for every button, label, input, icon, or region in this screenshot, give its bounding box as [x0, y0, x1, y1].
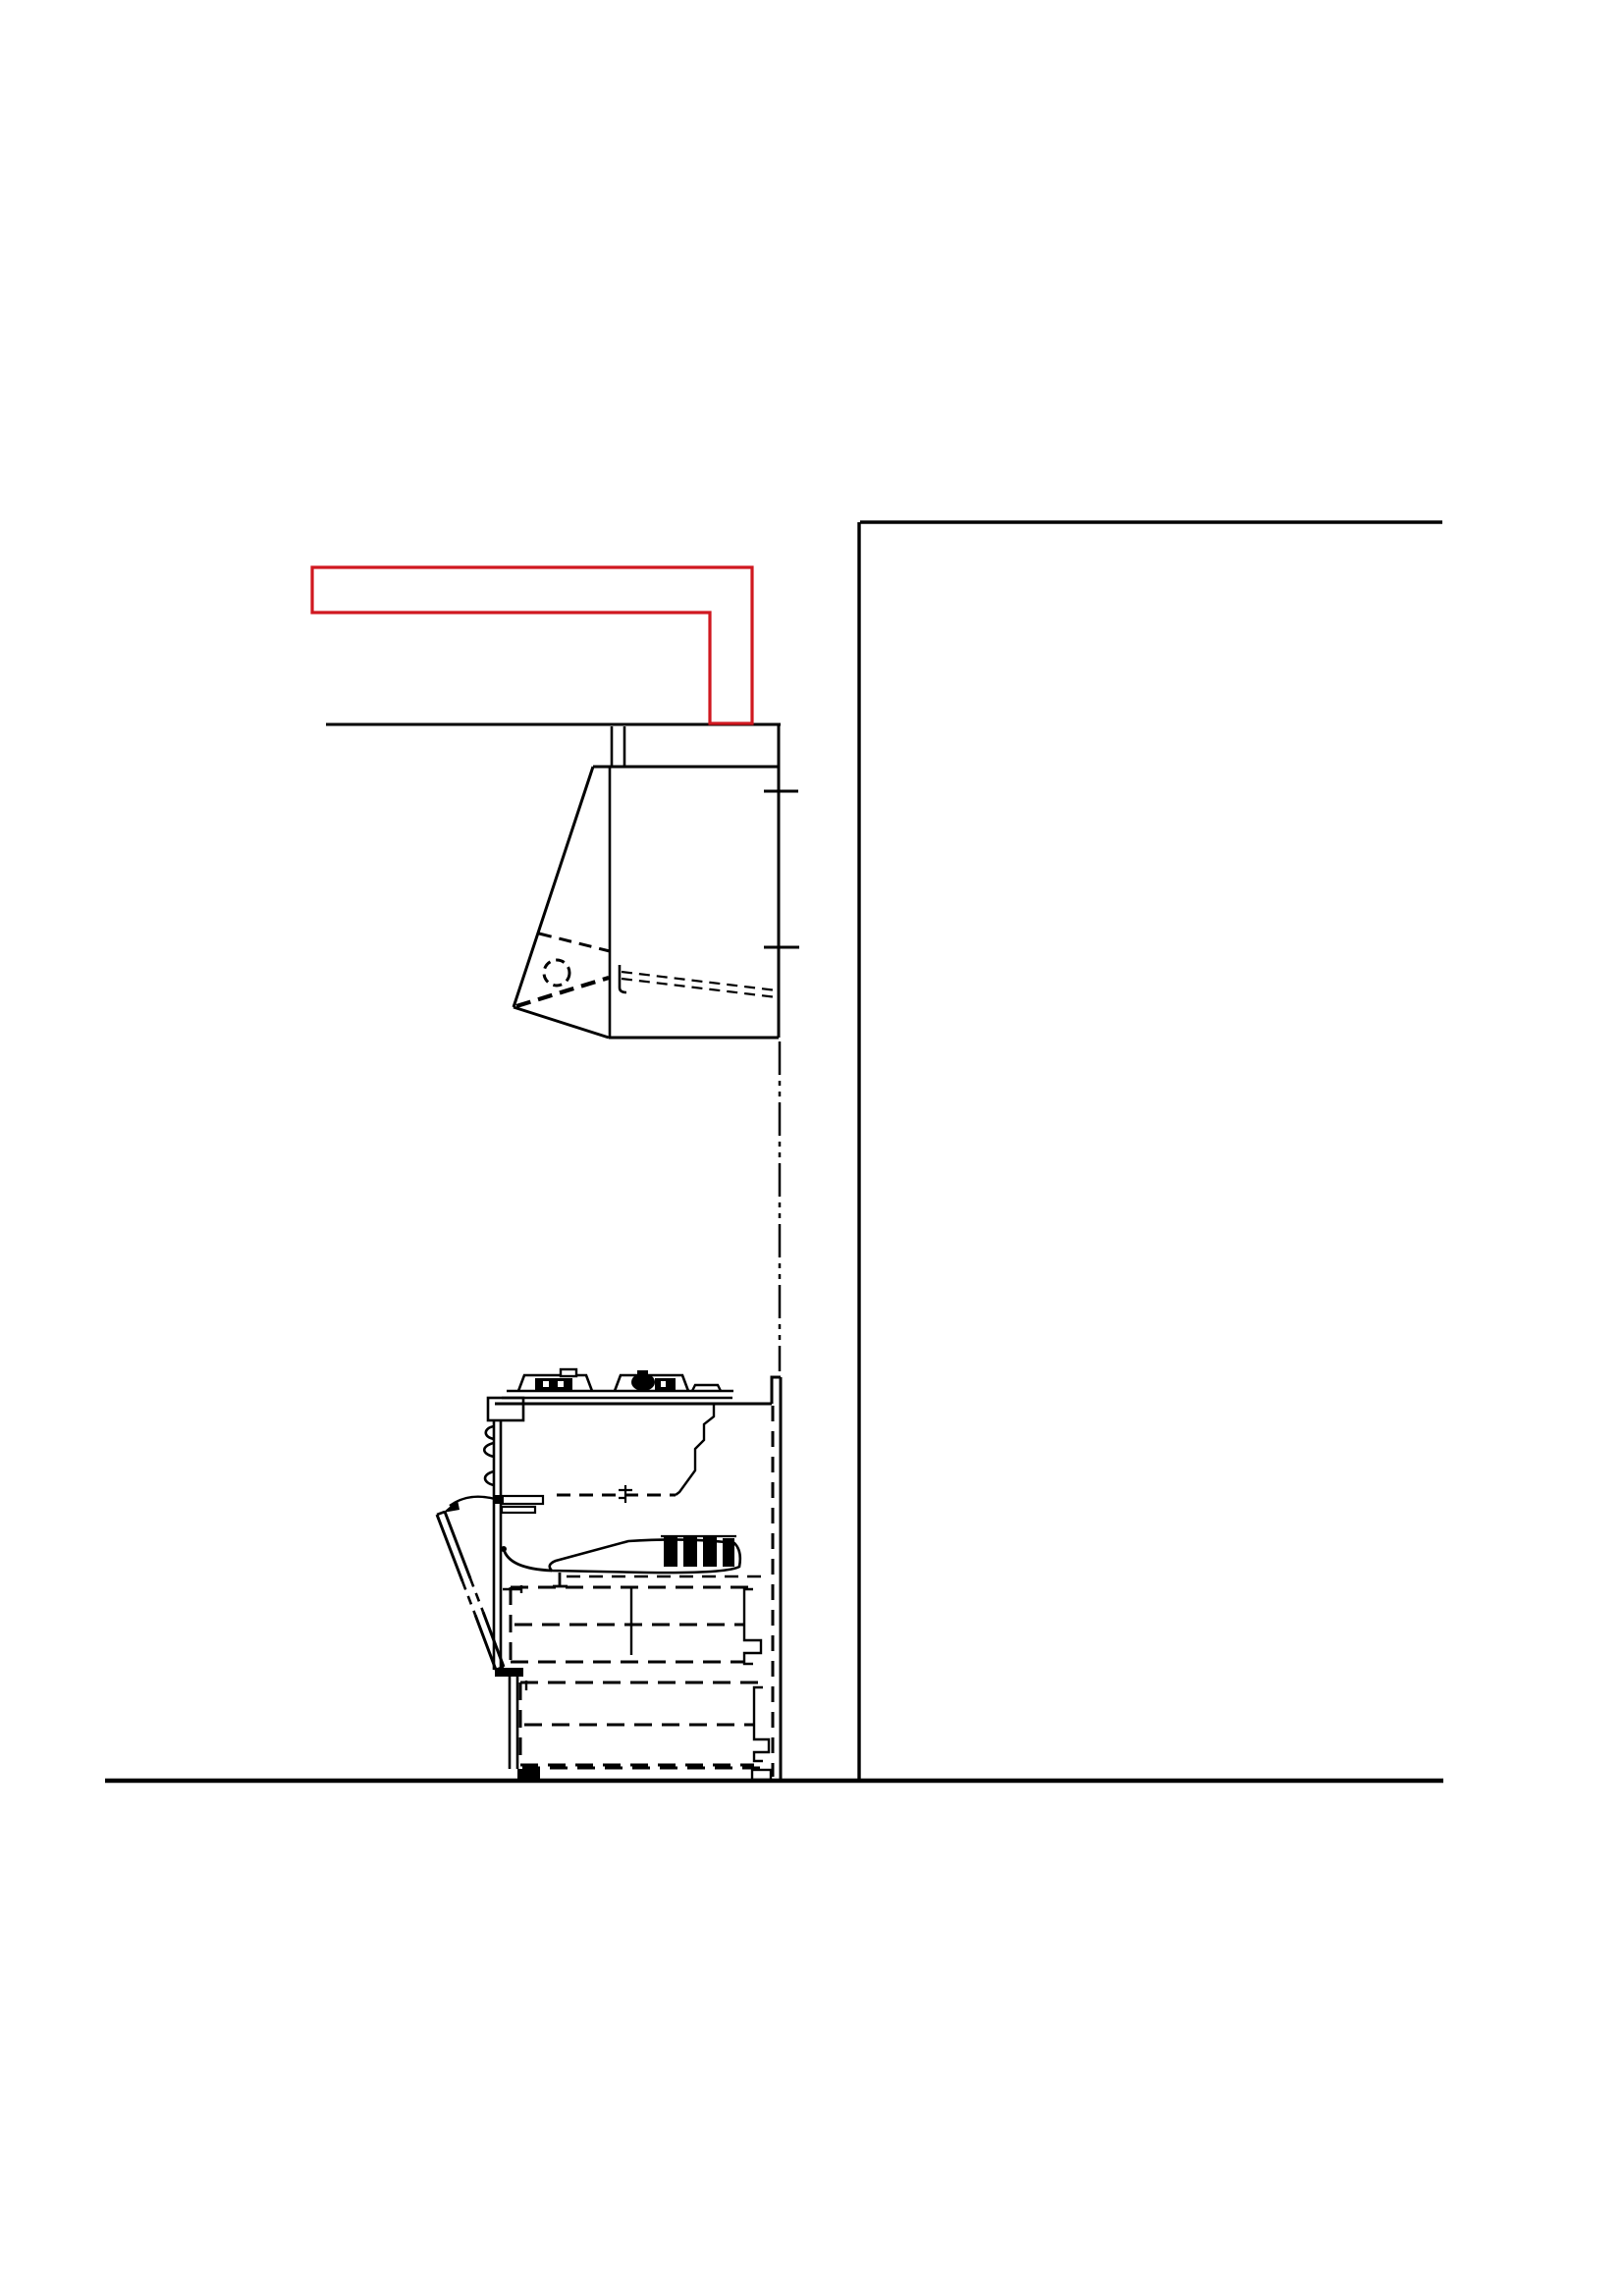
hood-lamp-circle — [544, 960, 569, 986]
hood-front-slant — [514, 767, 593, 1007]
pan-support-pin — [553, 1573, 568, 1586]
burner-right-slit — [661, 1381, 666, 1387]
cad-kitchen-elevation-drawing — [0, 0, 1624, 2296]
door-bottom-block — [495, 1668, 523, 1677]
grill-burner-bar — [723, 1538, 734, 1567]
base-cabinet — [501, 1406, 773, 1780]
grill-curve-joint — [501, 1546, 507, 1552]
control-knob — [485, 1471, 494, 1485]
burner-left-body — [535, 1378, 572, 1390]
control-knob — [484, 1443, 494, 1457]
grill-burner-bar — [683, 1536, 697, 1567]
counter-front-edge — [488, 1398, 523, 1420]
grill-burner-bar — [664, 1536, 677, 1567]
duct-shape — [312, 567, 752, 723]
grill-burner-bar — [703, 1536, 717, 1567]
hinge-bracket — [502, 1496, 543, 1504]
hood-bottom-slant — [514, 1007, 609, 1038]
hinge-bracket — [502, 1507, 535, 1513]
door-inner-dashed — [470, 1578, 483, 1612]
grill-chamber-curve — [504, 1549, 552, 1571]
hood-hidden-edge-upper — [539, 934, 610, 951]
burner-box-step-line — [676, 1404, 714, 1495]
drawer-lower-slide — [754, 1687, 769, 1761]
burner-right-knob — [637, 1370, 648, 1376]
exhaust-duct — [312, 567, 752, 723]
burner-cap — [561, 1369, 576, 1376]
drawer-upper-slide — [744, 1589, 761, 1664]
hood-hidden-edge-lower — [516, 978, 609, 1006]
burner-left-slit — [558, 1381, 564, 1387]
door-swing-arrowhead — [443, 1500, 460, 1513]
door-outer-line — [437, 1515, 496, 1670]
cabinet-foot-right — [752, 1770, 771, 1780]
cooktop — [484, 1369, 781, 1781]
drawing-canvas — [0, 0, 1624, 2296]
cabinet-foot-left — [517, 1769, 540, 1780]
burner-left-slit — [543, 1381, 549, 1387]
range-hood — [514, 725, 799, 1371]
